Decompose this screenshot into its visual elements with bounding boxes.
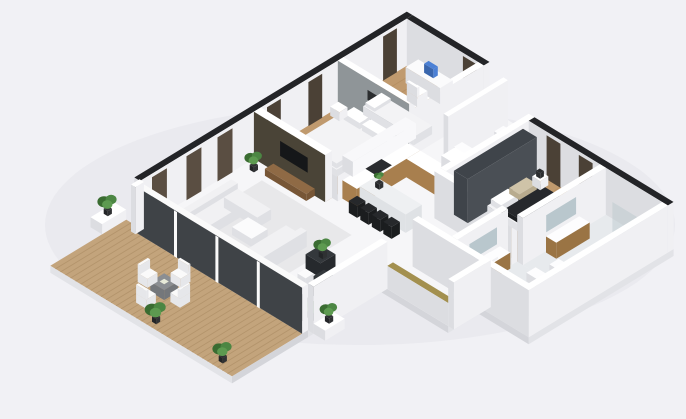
curtain-living-3 [218,128,233,181]
window-mullion-1 [174,210,177,258]
curtain-office-1 [383,28,397,80]
curtain-master-1 [547,135,561,187]
curtain-living-2 [187,147,202,200]
window-mullion-3 [257,261,260,309]
corner-post [131,179,144,234]
isometric-scene [0,0,686,419]
curtain-bedroom-2 [308,74,322,126]
window-mullion-2 [215,236,218,284]
floorplan-render [0,0,686,419]
